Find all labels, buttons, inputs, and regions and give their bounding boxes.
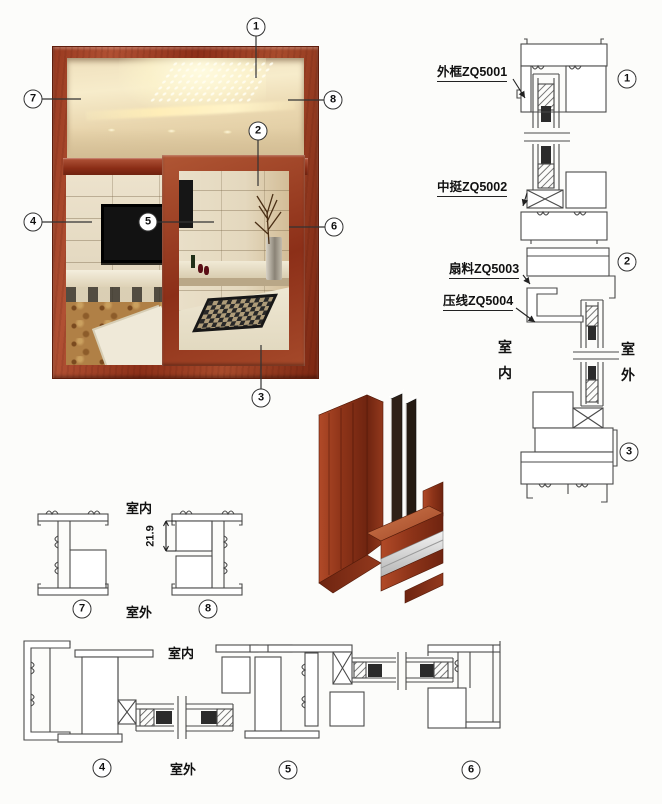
callout-6: 6 — [325, 218, 344, 237]
branches — [247, 192, 289, 244]
wine-bottle — [191, 255, 195, 268]
callout-2: 2 — [249, 122, 268, 141]
downlight — [167, 129, 176, 133]
indoor-label-vertical: 室内 — [497, 334, 513, 386]
casement-sash — [162, 155, 305, 366]
section-marker-1: 1 — [618, 70, 637, 89]
label-mullion: 中挺ZQ5002 — [437, 176, 507, 197]
sash-glass — [179, 171, 289, 350]
label-sash: 扇料ZQ5003 — [449, 258, 519, 279]
wall-fade — [67, 128, 304, 158]
wine-glass — [198, 264, 203, 273]
indoor-label-bottom: 室内 — [168, 643, 194, 662]
horizontal-section-diagram — [10, 635, 520, 745]
callout-4: 4 — [24, 213, 43, 232]
section-marker-6: 6 — [462, 761, 481, 780]
outdoor-label-bottom: 室外 — [170, 759, 196, 778]
section-marker-5: 5 — [279, 761, 298, 780]
callout-3: 3 — [252, 389, 271, 408]
callout-8: 8 — [324, 91, 343, 110]
bench — [66, 270, 162, 287]
section-marker-2: 2 — [618, 253, 637, 272]
label-bead: 压线ZQ5004 — [443, 290, 513, 311]
window-photo — [53, 47, 318, 378]
callout-1: 1 — [247, 18, 266, 37]
outdoor-label-vertical: 室外 — [620, 336, 636, 388]
section-marker-3: 3 — [620, 443, 639, 462]
dimension-21-9: 21.9 — [145, 525, 157, 546]
outdoor-label-small: 室外 — [126, 602, 152, 621]
profile-marker-7: 7 — [73, 600, 92, 619]
label-outer-frame: 外框ZQ5001 — [437, 61, 507, 82]
transom-pane — [67, 58, 304, 158]
wine-glass — [204, 266, 209, 275]
catalog-page: 1 2 3 4 5 6 7 8 外框ZQ5001 中挺ZQ5002 扇料ZQ50… — [0, 0, 662, 804]
profile-marker-8: 8 — [199, 600, 218, 619]
tv-screen — [101, 204, 162, 263]
bench-slats — [66, 287, 162, 302]
section-marker-4: 4 — [93, 759, 112, 778]
tv-edge — [179, 180, 193, 228]
callout-7: 7 — [24, 90, 43, 109]
callout-5: 5 — [139, 213, 158, 232]
indoor-label-small: 室内 — [126, 498, 152, 517]
fixed-pane — [66, 175, 162, 365]
